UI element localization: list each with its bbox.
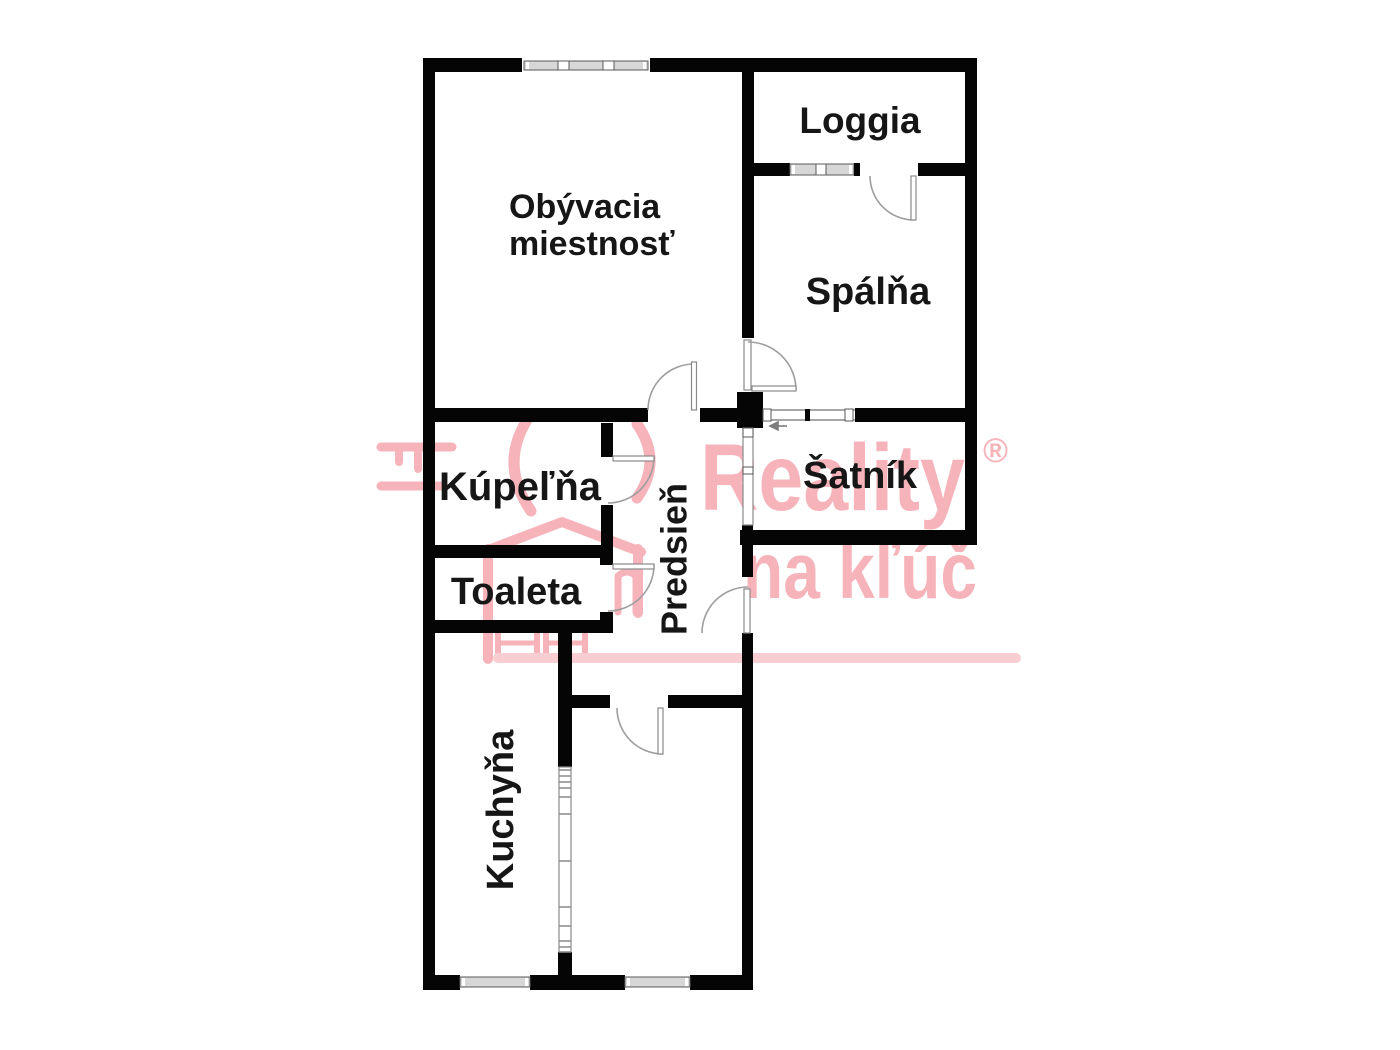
floor-plan-page: Reality ® na kľúč [0, 0, 1400, 1050]
dining-door [617, 708, 663, 754]
hallway-wall-glazing [743, 428, 753, 525]
bedroom-door [744, 340, 796, 391]
room-label-loggia: Loggia [799, 100, 921, 141]
loggia-door [870, 176, 916, 220]
living-room-door [648, 362, 697, 410]
living-room-window [524, 61, 648, 70]
floor-plan-image: Reality ® na kľúč [0, 0, 1400, 1050]
room-label-bedroom: Spálňa [806, 271, 931, 313]
room-label-bathroom: Kúpeľňa [439, 465, 602, 509]
dining-window [625, 977, 690, 987]
room-label-wardrobe: Šatník [803, 452, 918, 497]
room-labels: Obývacia miestnosť Loggia Spálňa Kúpeľňa… [439, 100, 931, 890]
room-label-toilet: Toaleta [451, 571, 582, 613]
watermark-registered-mark: ® [983, 432, 1008, 470]
kitchen-window [460, 977, 530, 987]
room-label-kitchen: Kuchyňa [480, 729, 522, 890]
room-label-living-line1: Obývacia [509, 188, 661, 226]
room-label-living-line2: miestnosť [509, 225, 675, 263]
room-label-hallway: Predsieň [654, 483, 695, 635]
loggia-window [790, 163, 860, 176]
kitchen-partition-glazing [559, 767, 571, 952]
